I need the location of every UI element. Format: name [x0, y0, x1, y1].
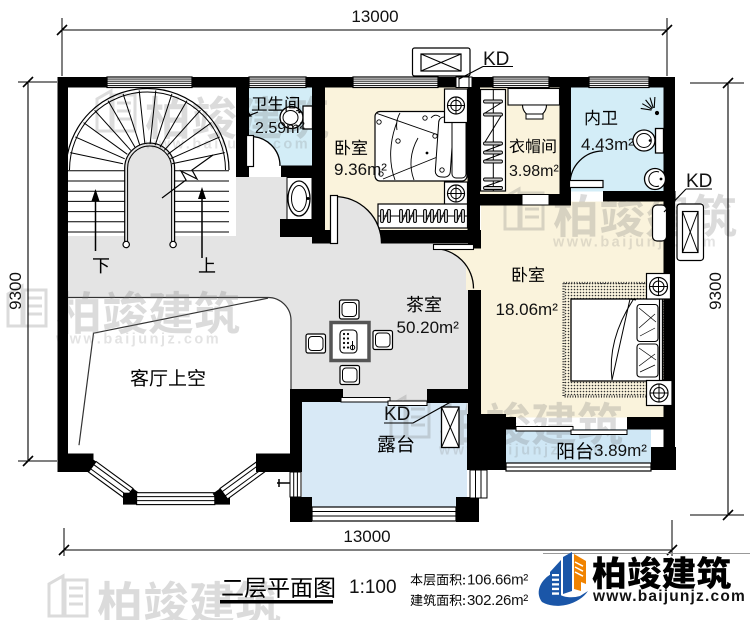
svg-text:3.89m²: 3.89m²: [594, 441, 647, 460]
svg-text:50.20m²: 50.20m²: [397, 318, 460, 337]
svg-text:18.06m²: 18.06m²: [496, 300, 559, 319]
svg-text:9300: 9300: [706, 272, 725, 310]
svg-text:9.36m²: 9.36m²: [334, 160, 387, 179]
svg-text:4.43m²: 4.43m²: [581, 135, 634, 154]
svg-text:www.baijunjz.com: www.baijunjz.com: [55, 332, 221, 348]
svg-text:13000: 13000: [351, 7, 398, 26]
svg-text:3.98m²: 3.98m²: [509, 163, 559, 180]
svg-text:www.baijunjz.com: www.baijunjz.com: [592, 588, 746, 605]
svg-text:2.59m²: 2.59m²: [255, 120, 305, 137]
svg-text:1:100: 1:100: [349, 577, 397, 598]
svg-text:302.26m²: 302.26m²: [467, 592, 528, 609]
svg-text:13000: 13000: [343, 527, 390, 546]
svg-text:106.66m²: 106.66m²: [467, 572, 528, 589]
svg-text:9300: 9300: [6, 272, 25, 310]
svg-text:KD: KD: [384, 404, 410, 425]
